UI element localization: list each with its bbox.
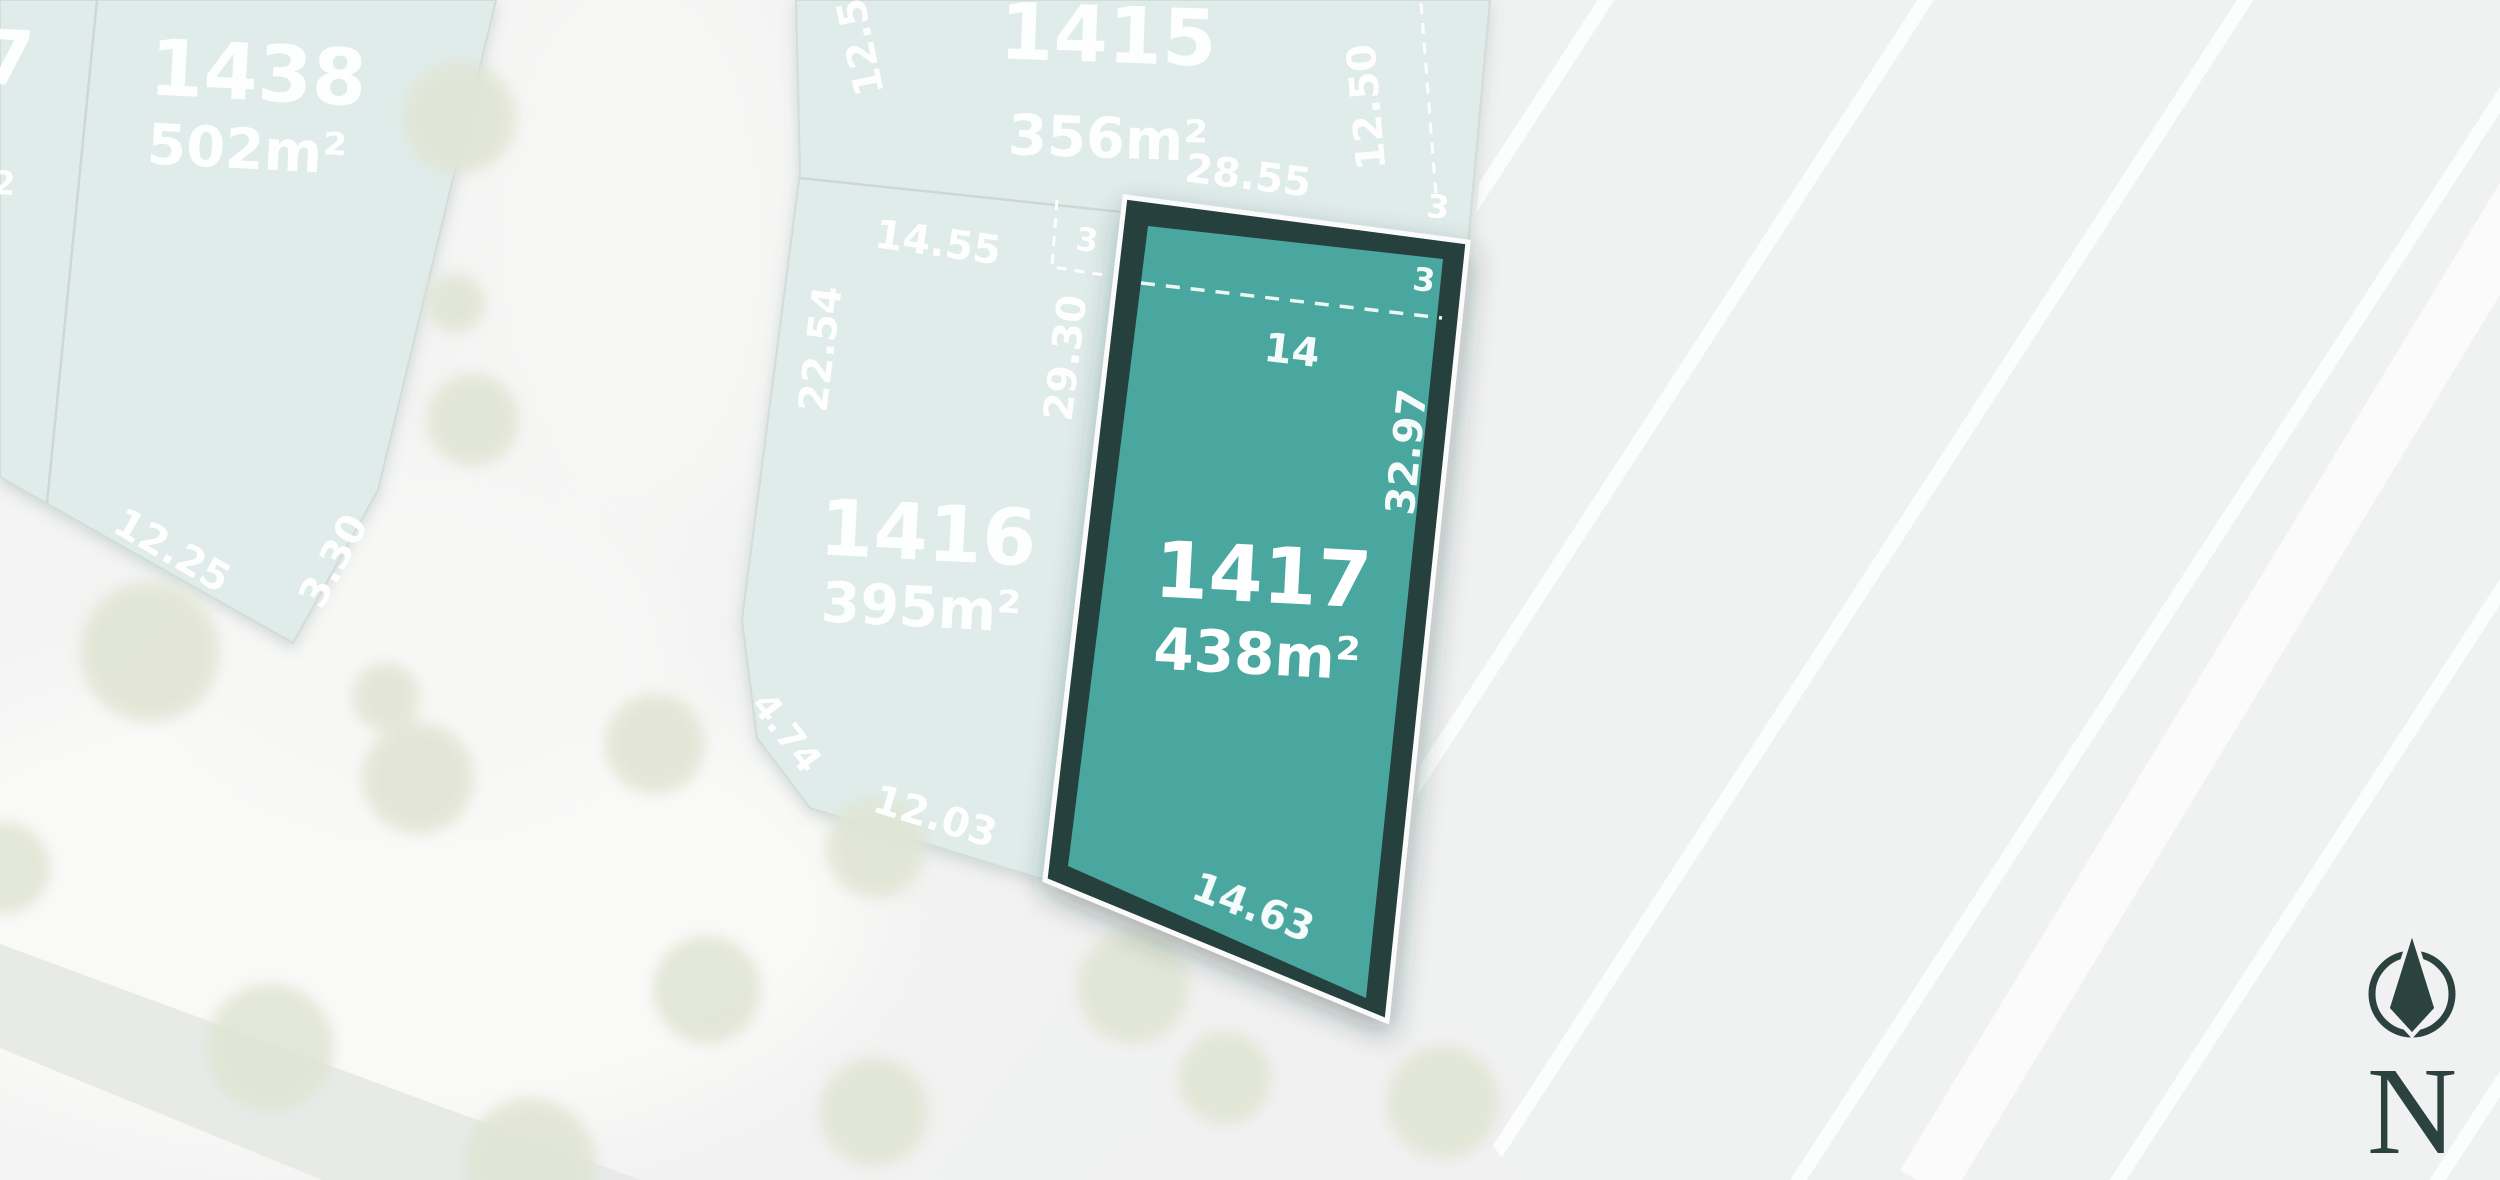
lot-1417-number: 1417 [1152,525,1374,626]
tree-icon [820,1058,928,1166]
lot-1438-area: 502m² [146,112,349,187]
lot-7-number: 7 [0,12,37,104]
tree-icon [80,582,220,722]
tree-icon [352,663,420,731]
lot-1438-number: 1438 [147,23,369,124]
offset-3-inner: 3 [1411,260,1438,300]
site-plan: 7 2 1438 502m² 1415 356m² 1416 395m² 141… [0,0,2500,1180]
offset-3-outer: 3 [1425,187,1452,227]
measurement-1417-offset-width: 14 [1262,325,1323,377]
tree-icon [653,936,761,1044]
north-compass-icon: N [2367,938,2457,1180]
tree-icon [206,984,334,1112]
lot-1417-area: 438m² [1152,615,1362,694]
hatched-road-area [1394,0,2500,1180]
tree-icon [427,374,519,466]
tree-icon [1387,1046,1499,1158]
tree-icon [362,722,474,834]
tree-icon [425,273,485,333]
lot-7-area-superscript: 2 [0,163,16,203]
lot-1416-number: 1416 [817,483,1039,584]
tree-icon [605,694,705,794]
tree-icon [404,62,516,174]
offset-3-1416: 3 [1074,220,1101,260]
north-label: N [2367,1043,2457,1180]
lot-1415-number: 1415 [998,0,1218,85]
site-plan-canvas: 7 2 1438 502m² 1415 356m² 1416 395m² 141… [0,0,2500,1180]
lot-1415-area: 356m² [1007,103,1209,175]
tree-icon [1179,1032,1271,1124]
lot-1416-area: 395m² [820,570,1023,645]
tree-icon [1077,931,1189,1043]
